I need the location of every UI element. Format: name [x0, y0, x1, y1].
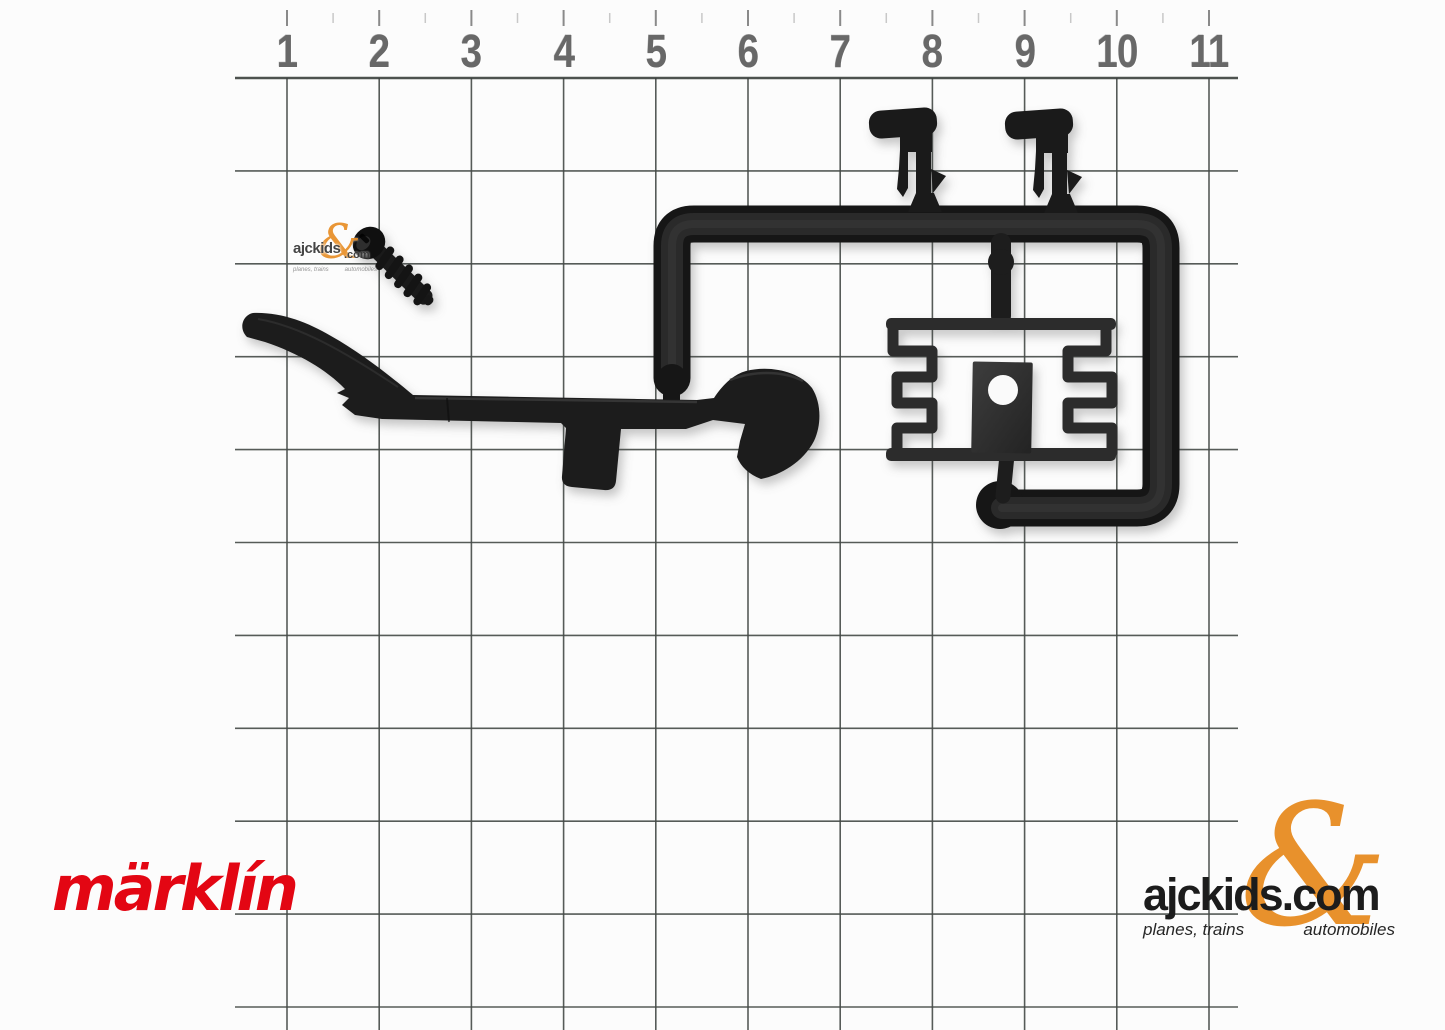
- watermark-name: ajckids: [293, 240, 340, 257]
- watermark-domain: .com: [344, 249, 370, 261]
- right-meander-spring: [1068, 326, 1112, 452]
- product-photo: 1234567891011: [0, 0, 1445, 1030]
- watermark-tagline: planes, trains automobiles: [293, 267, 377, 273]
- marklin-logo: märklín: [52, 858, 296, 920]
- watermark-tagline-left: planes, trains: [293, 267, 329, 273]
- ajckids-tagline: planes, trains automobiles: [1143, 920, 1395, 940]
- watermark-tagline-right: automobiles: [345, 267, 377, 273]
- contact-spring-part: [886, 318, 1117, 461]
- ajckids-logo: & ajckids.com planes, trains automobiles: [1143, 860, 1395, 960]
- snap-clip-part-2: [1004, 108, 1082, 213]
- plate-hole: [988, 375, 1018, 405]
- ajckids-tagline-right: automobiles: [1303, 920, 1395, 940]
- coupler-drawbar-part: [242, 313, 819, 490]
- snap-clip-part-1: [868, 107, 946, 212]
- ajckids-tagline-left: planes, trains: [1143, 920, 1244, 940]
- ajckids-watermark: & ajckids .com planes, trains automobile…: [293, 224, 377, 282]
- ajckids-wordmark: ajckids.com: [1143, 872, 1379, 917]
